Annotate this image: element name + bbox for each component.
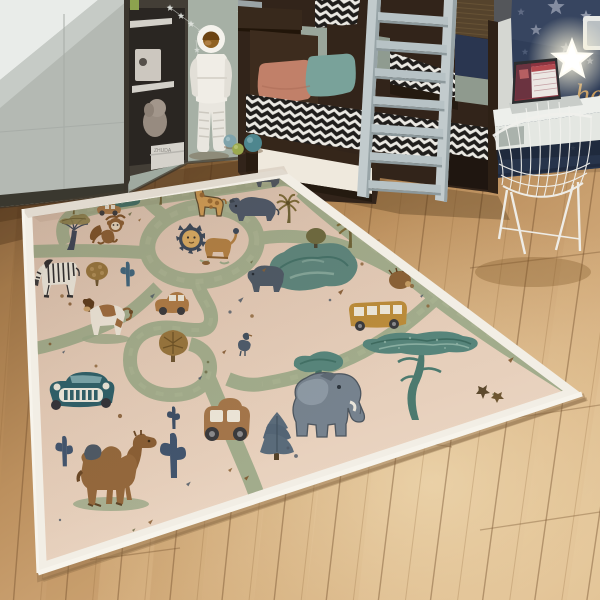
svg-text:ZHUDA: ZHUDA xyxy=(154,148,172,154)
